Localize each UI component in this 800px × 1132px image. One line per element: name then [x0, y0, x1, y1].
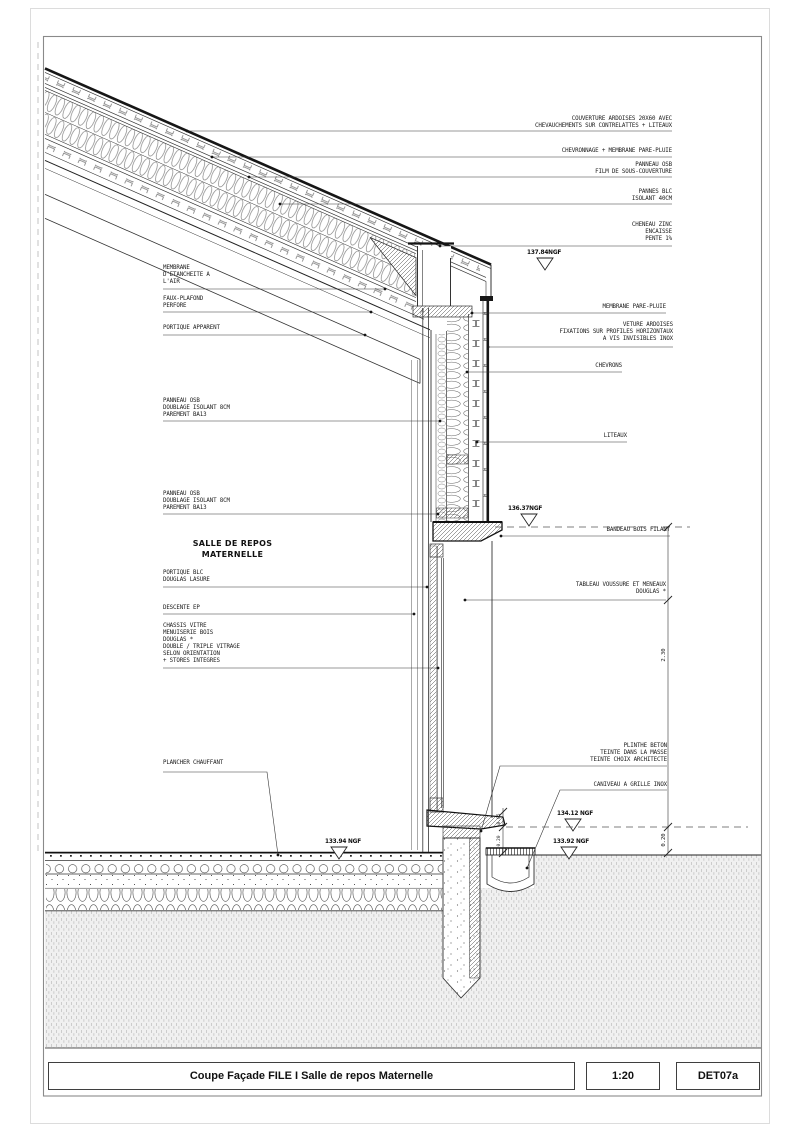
- foundation-pier: [443, 838, 480, 998]
- annotation-chevronnage: CHEVRONNAGE + MEMBRANE PARE-PLUIE: [372, 148, 672, 155]
- annotation-panneau-osb-bas: PANNEAU OSB DOUBLAGE ISOLANT 8CM PAREMEN…: [163, 491, 463, 512]
- level-text-ngf-136-37: 136.37NGF: [508, 506, 542, 512]
- drawing-ref: DET07a: [698, 1070, 738, 1082]
- title-block-scale-cell: 1:20: [586, 1062, 660, 1090]
- level-text-ngf-134-12: 134.12 NGF: [557, 811, 593, 817]
- room-label: SALLE DE REPOS MATERNELLE: [170, 538, 295, 560]
- drawing-scale: 1:20: [612, 1070, 634, 1082]
- annotation-portique-blc: PORTIQUE BLC DOUGLAS LASURE: [163, 570, 463, 584]
- channel-drain: [486, 848, 535, 892]
- annotation-pannes-blc: PANNES BLC ISOLANT 40CM: [372, 189, 672, 203]
- title-block-ref-cell: DET07a: [676, 1062, 760, 1090]
- annotation-bandeau-bois: BANDEAU BOIS FILANT: [370, 527, 670, 534]
- level-text-ngf-133-92: 133.92 NGF: [553, 839, 589, 845]
- annotation-faux-plafond: FAUX-PLAFOND PERFORE: [163, 296, 463, 310]
- drawing-sheet: 2.300.200.050.20 SALLE DE REPOS MATERNEL…: [0, 0, 800, 1132]
- drawing-title: Coupe Façade FILE I Salle de repos Mater…: [190, 1070, 433, 1082]
- drain-grille: [486, 848, 535, 855]
- annotation-caniveau: CANIVEAU A GRILLE INOX: [367, 782, 667, 789]
- annotation-membrane-etancheite: MEMBRANE D'ETANCHEITE A L'AIR: [163, 265, 463, 286]
- level-text-ngf-133-94: 133.94 NGF: [325, 839, 361, 845]
- annotation-plancher-chauffant: PLANCHER CHAUFFANT: [163, 760, 463, 767]
- annotation-panneau-osb-haut: PANNEAU OSB DOUBLAGE ISOLANT 8CM PAREMEN…: [163, 398, 463, 419]
- annotation-chevrons: CHEVRONS: [322, 363, 622, 370]
- level-text-ngf-137-84: 137.84NGF: [527, 250, 561, 256]
- annotation-descente-ep: DESCENTE EP: [163, 605, 463, 612]
- annotation-portique-apparent: PORTIQUE APPARENT: [163, 325, 463, 332]
- portique-frame: [45, 194, 420, 383]
- window-sill: [427, 810, 505, 838]
- annotation-liteaux: LITEAUX: [327, 433, 627, 440]
- floor-assembly: [45, 853, 446, 911]
- title-block-title-cell: Coupe Façade FILE I Salle de repos Mater…: [48, 1062, 575, 1090]
- annotation-cheneau: CHENEAU ZINC ENCAISSE PENTE 1%: [372, 222, 672, 243]
- room-label-line2: MATERNELLE: [170, 549, 295, 560]
- annotation-couverture: COUVERTURE ARDOISES 20X60 AVEC CHEVAUCHE…: [372, 116, 672, 130]
- annotation-panneau-osb-toiture: PANNEAU OSB FILM DE SOUS-COUVERTURE: [372, 162, 672, 176]
- annotation-chassis-vitre: CHASSIS VITRE MENUISERIE BOIS DOUGLAS * …: [163, 623, 463, 666]
- room-label-line1: SALLE DE REPOS: [170, 538, 295, 549]
